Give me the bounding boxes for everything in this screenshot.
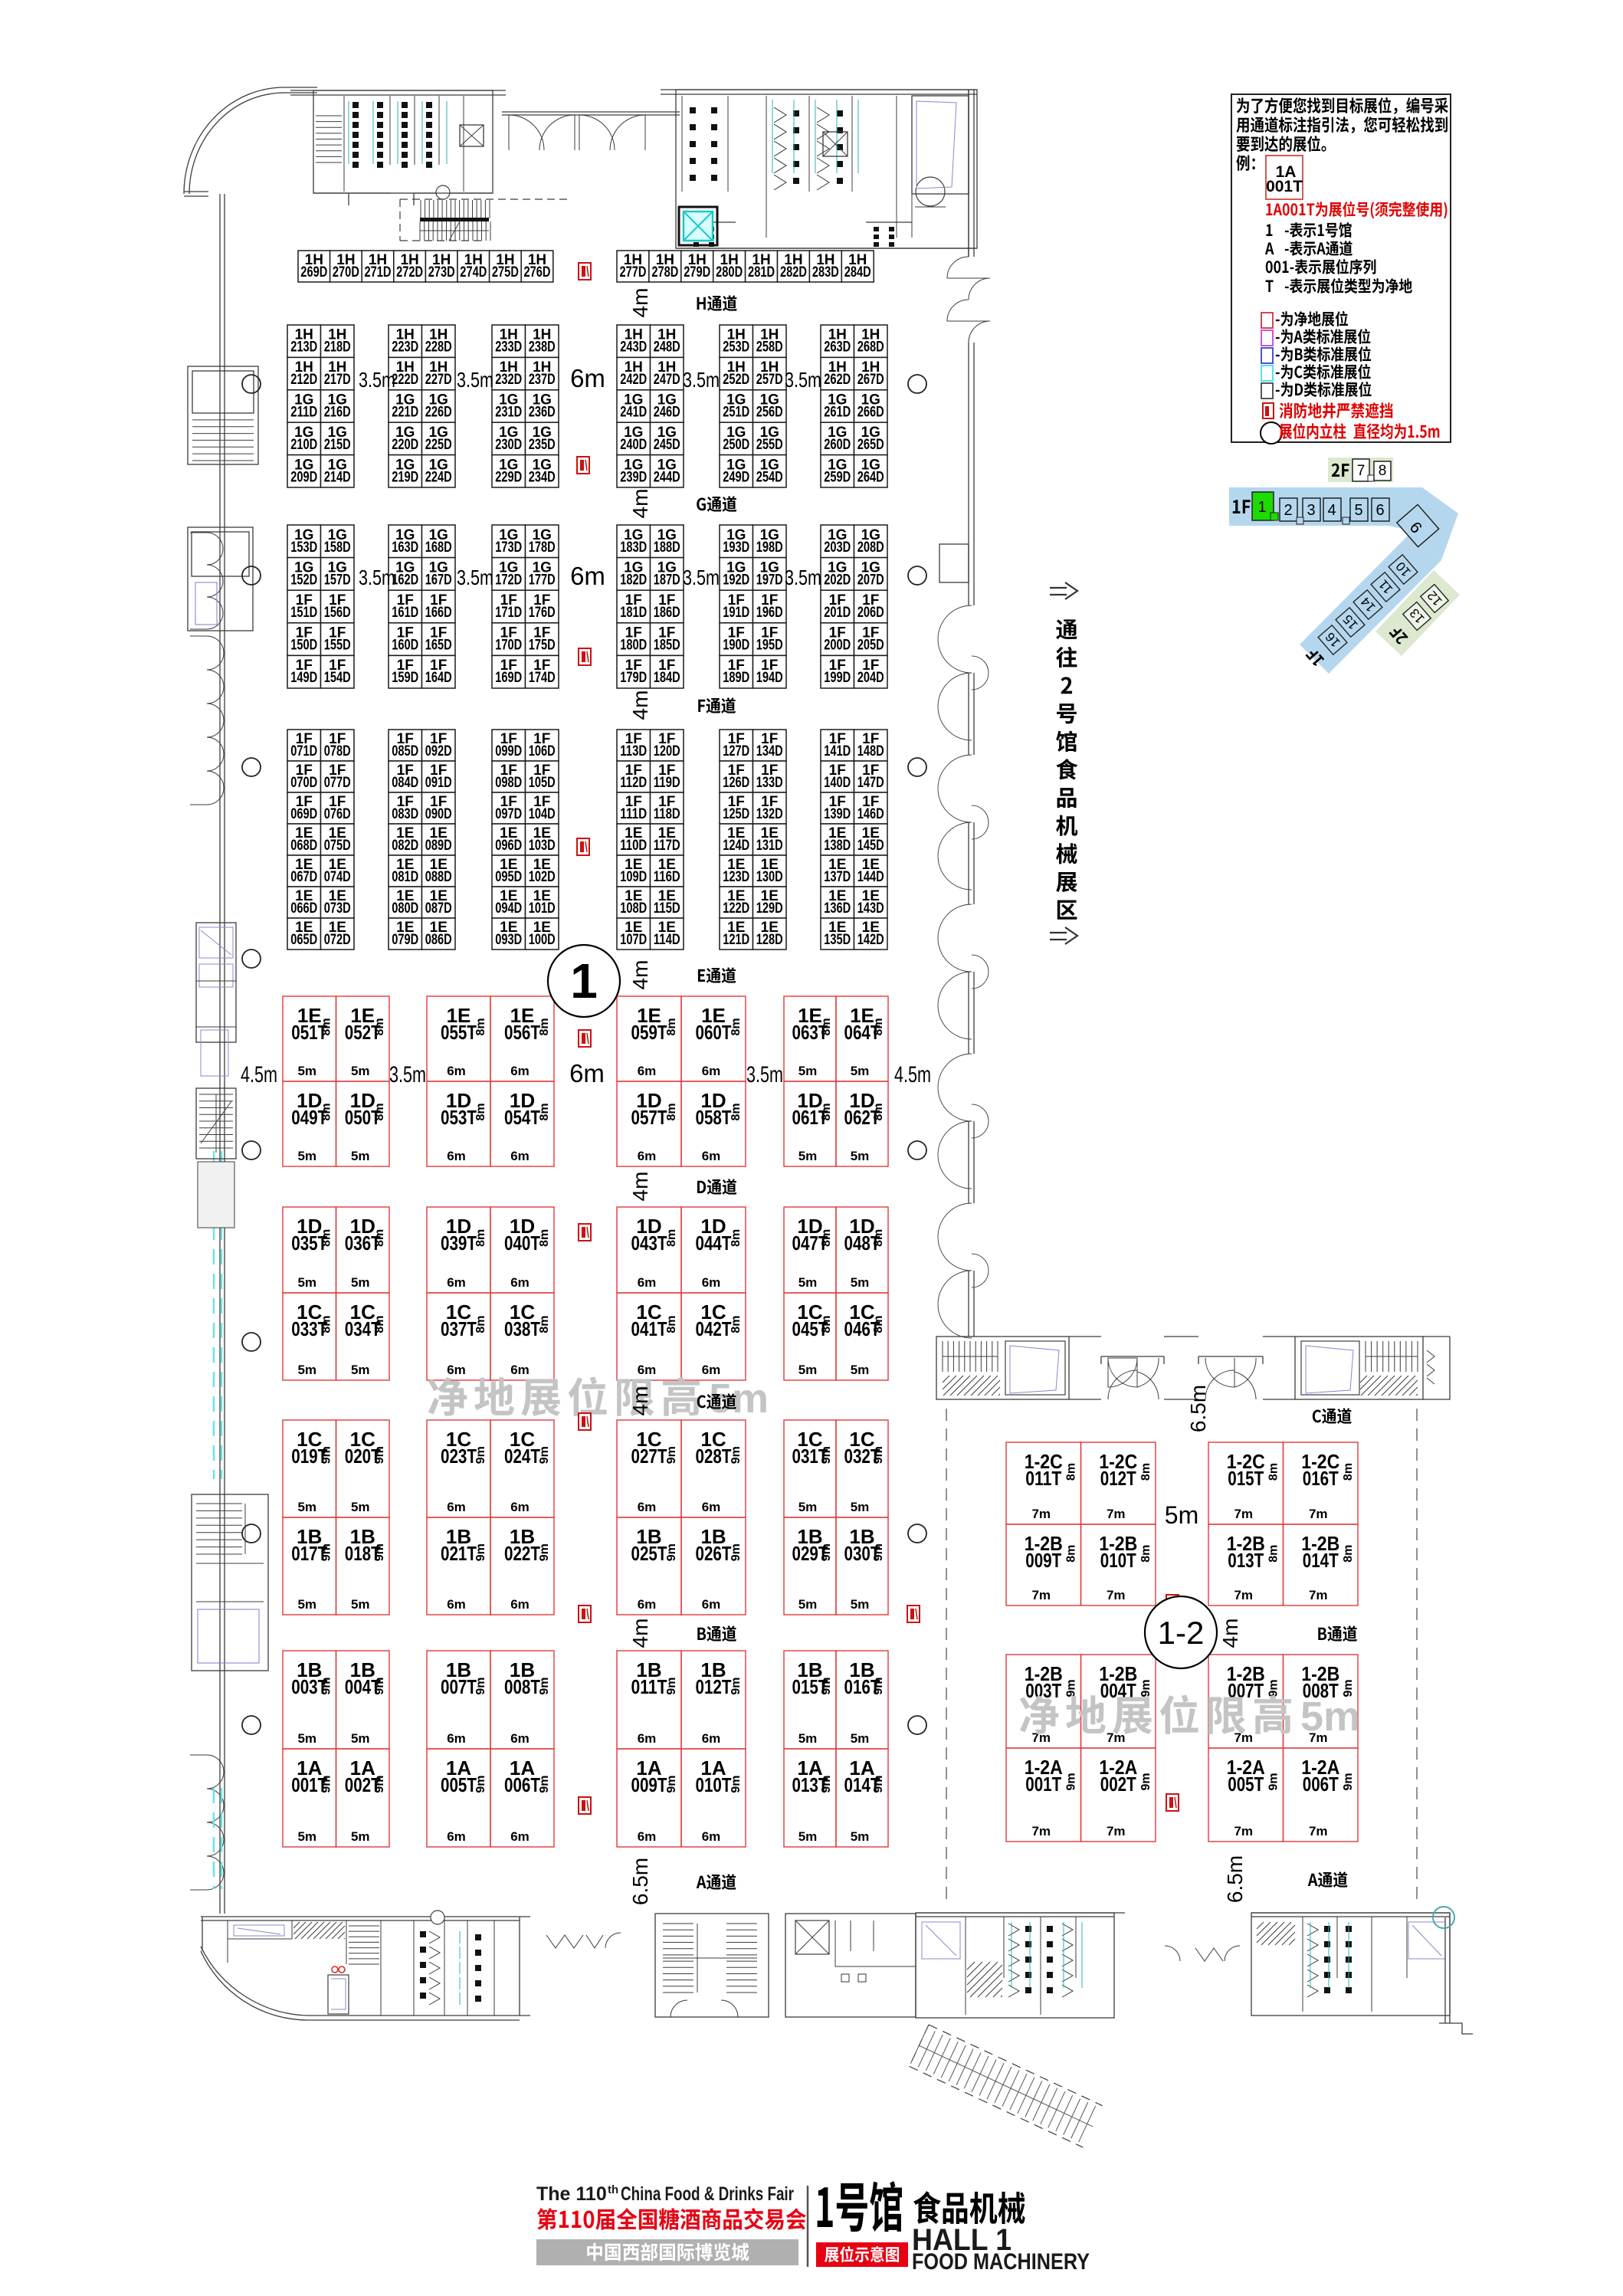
svg-text:7: 7 xyxy=(1357,463,1366,479)
svg-text:8: 8 xyxy=(1379,463,1387,479)
svg-text:077D: 077D xyxy=(324,775,351,791)
svg-text:075D: 075D xyxy=(324,838,351,854)
svg-text:9m: 9m xyxy=(730,1678,743,1695)
svg-text:001T: 001T xyxy=(1025,1773,1061,1796)
svg-text:167D: 167D xyxy=(425,572,452,588)
svg-text:8m: 8m xyxy=(320,1229,333,1247)
svg-text:227D: 227D xyxy=(425,372,452,388)
svg-text:168D: 168D xyxy=(425,540,452,556)
svg-text:6m: 6m xyxy=(638,1275,657,1290)
svg-text:149D: 149D xyxy=(290,670,317,686)
svg-text:9m: 9m xyxy=(474,1543,487,1561)
svg-text:265D: 265D xyxy=(857,437,884,453)
svg-text:3: 3 xyxy=(1307,502,1315,519)
svg-text:5m: 5m xyxy=(798,1149,818,1163)
svg-text:9m: 9m xyxy=(1065,1773,1078,1790)
svg-text:141D: 141D xyxy=(824,743,851,759)
svg-text:254D: 254D xyxy=(756,469,783,485)
svg-text:189D: 189D xyxy=(723,670,749,686)
svg-text:6m: 6m xyxy=(510,1275,530,1290)
svg-text:082D: 082D xyxy=(392,838,418,854)
svg-text:009T: 009T xyxy=(1025,1549,1061,1572)
svg-text:262D: 262D xyxy=(824,372,851,388)
svg-text:176D: 176D xyxy=(529,605,556,621)
svg-text:8m: 8m xyxy=(538,1018,551,1035)
svg-text:267D: 267D xyxy=(857,372,884,388)
svg-text:263D: 263D xyxy=(824,339,851,356)
svg-text:152D: 152D xyxy=(290,572,317,588)
svg-text:6m: 6m xyxy=(447,1597,466,1612)
svg-text:9m: 9m xyxy=(320,1446,333,1464)
svg-text:146D: 146D xyxy=(857,806,884,822)
svg-text:192D: 192D xyxy=(723,572,749,588)
svg-text:5m: 5m xyxy=(351,1597,370,1612)
svg-text:234D: 234D xyxy=(529,469,556,485)
svg-text:026T: 026T xyxy=(696,1542,732,1565)
svg-text:5m: 5m xyxy=(351,1500,370,1514)
svg-text:122D: 122D xyxy=(723,900,749,917)
svg-text:179D: 179D xyxy=(620,670,647,686)
svg-text:282D: 282D xyxy=(780,264,807,280)
svg-text:4m: 4m xyxy=(628,1386,652,1416)
svg-text:185D: 185D xyxy=(654,638,680,654)
svg-text:070D: 070D xyxy=(290,775,317,791)
svg-text:9m: 9m xyxy=(538,1678,551,1695)
svg-text:236D: 236D xyxy=(529,405,556,421)
svg-text:8m: 8m xyxy=(1267,1545,1280,1563)
svg-text:6.5m: 6.5m xyxy=(628,1858,652,1905)
svg-text:8m: 8m xyxy=(665,1315,678,1333)
svg-text:009T: 009T xyxy=(631,1773,667,1796)
svg-text:160D: 160D xyxy=(392,638,418,654)
svg-text:9m: 9m xyxy=(474,1776,487,1793)
svg-text:083D: 083D xyxy=(392,806,418,822)
svg-text:011T: 011T xyxy=(1025,1467,1061,1490)
svg-text:217D: 217D xyxy=(324,372,351,388)
svg-text:8m: 8m xyxy=(474,1315,487,1333)
svg-text:6m: 6m xyxy=(702,1829,721,1844)
svg-text:8m: 8m xyxy=(872,1229,885,1247)
svg-text:5m: 5m xyxy=(798,1064,818,1078)
svg-text:111D: 111D xyxy=(620,806,647,822)
svg-text:8m: 8m xyxy=(730,1018,743,1035)
svg-text:038T: 038T xyxy=(504,1317,540,1340)
svg-text:118D: 118D xyxy=(654,806,680,822)
svg-text:8m: 8m xyxy=(1139,1463,1152,1481)
svg-text:162D: 162D xyxy=(392,572,418,588)
svg-text:060T: 060T xyxy=(696,1021,732,1044)
svg-text:191D: 191D xyxy=(723,605,749,621)
svg-text:China Food & Drinks Fair: China Food & Drinks Fair xyxy=(621,2183,794,2205)
svg-text:273D: 273D xyxy=(428,264,455,280)
svg-text:9m: 9m xyxy=(1267,1773,1280,1790)
svg-text:151D: 151D xyxy=(290,605,317,621)
svg-text:150D: 150D xyxy=(290,638,317,654)
svg-text:166D: 166D xyxy=(425,605,452,621)
svg-text:068D: 068D xyxy=(290,838,317,854)
svg-text:6m: 6m xyxy=(510,1363,530,1377)
svg-text:170D: 170D xyxy=(495,638,522,654)
svg-text:5m: 5m xyxy=(351,1363,370,1377)
svg-text:8m: 8m xyxy=(1267,1463,1280,1481)
svg-text:129D: 129D xyxy=(756,900,783,917)
svg-text:200D: 200D xyxy=(824,638,851,654)
svg-text:9m: 9m xyxy=(872,1543,885,1561)
svg-text:110D: 110D xyxy=(620,838,647,854)
svg-text:252D: 252D xyxy=(723,372,749,388)
svg-text:3.5m: 3.5m xyxy=(457,368,493,392)
svg-text:6m: 6m xyxy=(638,1500,657,1514)
svg-text:4.5m: 4.5m xyxy=(894,1062,931,1087)
svg-text:5m: 5m xyxy=(1300,1694,1360,1740)
svg-text:3.5m: 3.5m xyxy=(359,368,395,392)
svg-text:001T: 001T xyxy=(1266,178,1303,195)
svg-text:272D: 272D xyxy=(396,264,423,280)
svg-text:4m: 4m xyxy=(1218,1619,1242,1648)
svg-text:164D: 164D xyxy=(425,670,452,686)
svg-text:7m: 7m xyxy=(1309,1507,1328,1521)
svg-text:8m: 8m xyxy=(665,1018,678,1035)
svg-text:256D: 256D xyxy=(756,405,783,421)
svg-text:025T: 025T xyxy=(631,1542,667,1565)
svg-text:169D: 169D xyxy=(495,670,522,686)
svg-text:9m: 9m xyxy=(820,1678,833,1695)
svg-text:7m: 7m xyxy=(1234,1824,1253,1838)
svg-text:280D: 280D xyxy=(716,264,743,280)
svg-text:6m: 6m xyxy=(510,1064,530,1078)
svg-text:9m: 9m xyxy=(872,1446,885,1464)
svg-text:8m: 8m xyxy=(1342,1545,1355,1563)
svg-text:7m: 7m xyxy=(1107,1824,1126,1838)
svg-text:021T: 021T xyxy=(441,1542,477,1565)
svg-text:127D: 127D xyxy=(723,743,749,759)
svg-text:145D: 145D xyxy=(857,838,884,854)
svg-text:3.5m: 3.5m xyxy=(389,1062,426,1087)
svg-text:8m: 8m xyxy=(820,1229,833,1247)
svg-text:9m: 9m xyxy=(665,1776,678,1793)
svg-text:161D: 161D xyxy=(392,605,418,621)
svg-text:074D: 074D xyxy=(324,869,351,885)
svg-text:014T: 014T xyxy=(1303,1549,1339,1572)
svg-text:6m: 6m xyxy=(447,1149,466,1163)
svg-text:7m: 7m xyxy=(1234,1588,1253,1602)
svg-text:103D: 103D xyxy=(529,838,556,854)
svg-text:9m: 9m xyxy=(373,1543,386,1561)
svg-text:131D: 131D xyxy=(756,838,783,854)
svg-text:092D: 092D xyxy=(425,743,452,759)
svg-text:098D: 098D xyxy=(495,775,522,791)
svg-text:6m: 6m xyxy=(638,1149,657,1163)
svg-text:086D: 086D xyxy=(425,932,452,948)
svg-text:9m: 9m xyxy=(320,1678,333,1695)
svg-text:204D: 204D xyxy=(857,670,884,686)
svg-text:177D: 177D xyxy=(529,572,556,588)
svg-text:187D: 187D xyxy=(654,572,680,588)
svg-text:5m: 5m xyxy=(351,1829,370,1844)
svg-text:266D: 266D xyxy=(857,405,884,421)
svg-text:058T: 058T xyxy=(696,1106,732,1129)
svg-text:4m: 4m xyxy=(628,960,652,990)
svg-text:242D: 242D xyxy=(620,372,647,388)
svg-text:6m: 6m xyxy=(447,1363,466,1377)
svg-text:5m: 5m xyxy=(351,1149,370,1163)
svg-text:5m: 5m xyxy=(297,1829,316,1844)
svg-text:6m: 6m xyxy=(510,1149,530,1163)
svg-text:073D: 073D xyxy=(324,900,351,917)
svg-text:201D: 201D xyxy=(824,605,851,621)
svg-text:8m: 8m xyxy=(1065,1545,1078,1563)
svg-text:218D: 218D xyxy=(324,339,351,356)
svg-text:057T: 057T xyxy=(631,1106,667,1129)
svg-text:5m: 5m xyxy=(297,1363,316,1377)
svg-text:209D: 209D xyxy=(290,469,317,485)
svg-text:084D: 084D xyxy=(392,775,418,791)
svg-text:6m: 6m xyxy=(638,1731,657,1746)
svg-text:107D: 107D xyxy=(620,932,647,948)
svg-text:181D: 181D xyxy=(620,605,647,621)
svg-text:6.5m: 6.5m xyxy=(1223,1855,1247,1903)
svg-text:6m: 6m xyxy=(702,1731,721,1746)
svg-text:197D: 197D xyxy=(756,572,783,588)
svg-text:154D: 154D xyxy=(324,670,351,686)
svg-text:5: 5 xyxy=(1354,502,1362,519)
svg-text:005T: 005T xyxy=(441,1773,477,1796)
svg-text:9m: 9m xyxy=(730,1446,743,1464)
svg-text:163D: 163D xyxy=(392,540,418,556)
svg-text:9m: 9m xyxy=(1139,1679,1152,1697)
svg-text:096D: 096D xyxy=(495,838,522,854)
svg-text:043T: 043T xyxy=(631,1232,667,1255)
svg-text:9m: 9m xyxy=(872,1776,885,1793)
svg-text:9m: 9m xyxy=(872,1678,885,1695)
svg-text:113D: 113D xyxy=(620,743,647,759)
svg-text:8m: 8m xyxy=(730,1229,743,1247)
svg-text:5m: 5m xyxy=(351,1275,370,1290)
svg-text:013T: 013T xyxy=(1228,1549,1264,1572)
svg-text:213D: 213D xyxy=(290,339,317,356)
svg-text:8m: 8m xyxy=(820,1103,833,1120)
svg-text:186D: 186D xyxy=(654,605,680,621)
svg-text:6m: 6m xyxy=(702,1500,721,1514)
svg-text:106D: 106D xyxy=(529,743,556,759)
svg-text:243D: 243D xyxy=(620,339,647,356)
svg-text:037T: 037T xyxy=(441,1317,477,1340)
svg-text:216D: 216D xyxy=(324,405,351,421)
svg-text:220D: 220D xyxy=(392,437,418,453)
svg-text:251D: 251D xyxy=(723,405,749,421)
svg-text:042T: 042T xyxy=(696,1317,732,1340)
svg-text:5m: 5m xyxy=(851,1064,870,1078)
svg-text:053T: 053T xyxy=(441,1106,477,1129)
svg-text:067D: 067D xyxy=(290,869,317,885)
svg-text:212D: 212D xyxy=(290,372,317,388)
svg-text:7m: 7m xyxy=(1031,1824,1051,1838)
svg-text:101D: 101D xyxy=(529,900,556,917)
svg-text:6m: 6m xyxy=(510,1500,530,1514)
svg-text:268D: 268D xyxy=(857,339,884,356)
svg-text:6m: 6m xyxy=(570,562,605,590)
svg-text:260D: 260D xyxy=(824,437,851,453)
svg-text:155D: 155D xyxy=(324,638,351,654)
svg-text:5m: 5m xyxy=(851,1500,870,1514)
svg-text:8m: 8m xyxy=(730,1315,743,1333)
svg-text:081D: 081D xyxy=(392,869,418,885)
svg-text:195D: 195D xyxy=(756,638,783,654)
svg-text:069D: 069D xyxy=(290,806,317,822)
svg-text:136D: 136D xyxy=(824,900,851,917)
svg-text:065D: 065D xyxy=(290,932,317,948)
svg-text:006T: 006T xyxy=(504,1773,540,1796)
svg-text:003T: 003T xyxy=(1025,1679,1061,1702)
svg-text:264D: 264D xyxy=(857,469,884,485)
svg-text:6m: 6m xyxy=(510,1731,530,1746)
svg-text:135D: 135D xyxy=(824,932,851,948)
svg-text:8m: 8m xyxy=(1065,1463,1078,1481)
svg-text:225D: 225D xyxy=(425,437,452,453)
svg-text:229D: 229D xyxy=(495,469,522,485)
svg-text:5m: 5m xyxy=(851,1275,870,1290)
svg-text:249D: 249D xyxy=(723,469,749,485)
svg-text:232D: 232D xyxy=(495,372,522,388)
svg-text:221D: 221D xyxy=(392,405,418,421)
svg-text:194D: 194D xyxy=(756,670,783,686)
svg-text:233D: 233D xyxy=(495,339,522,356)
svg-text:6m: 6m xyxy=(702,1275,721,1290)
svg-text:3.5m: 3.5m xyxy=(683,566,720,589)
svg-text:076D: 076D xyxy=(324,806,351,822)
svg-text:224D: 224D xyxy=(425,469,452,485)
svg-text:276D: 276D xyxy=(524,264,551,280)
svg-text:133D: 133D xyxy=(756,775,783,791)
svg-text:184D: 184D xyxy=(654,670,680,686)
svg-text:205D: 205D xyxy=(857,638,884,654)
svg-text:1: 1 xyxy=(570,953,598,1009)
svg-text:8m: 8m xyxy=(373,1018,386,1035)
svg-text:250D: 250D xyxy=(723,437,749,453)
svg-text:9m: 9m xyxy=(665,1543,678,1561)
svg-text:193D: 193D xyxy=(723,540,749,556)
svg-text:9m: 9m xyxy=(373,1776,386,1793)
svg-text:253D: 253D xyxy=(723,339,749,356)
svg-text:215D: 215D xyxy=(324,437,351,453)
svg-text:180D: 180D xyxy=(620,638,647,654)
svg-text:248D: 248D xyxy=(654,339,680,356)
svg-text:094D: 094D xyxy=(495,900,522,917)
svg-text:240D: 240D xyxy=(620,437,647,453)
svg-text:5m: 5m xyxy=(798,1597,818,1612)
svg-text:123D: 123D xyxy=(723,869,749,885)
svg-text:6m: 6m xyxy=(447,1064,466,1078)
svg-text:095D: 095D xyxy=(495,869,522,885)
svg-text:5m: 5m xyxy=(297,1731,316,1746)
svg-text:091D: 091D xyxy=(425,775,452,791)
svg-text:089D: 089D xyxy=(425,838,452,854)
svg-text:223D: 223D xyxy=(392,339,418,356)
svg-text:258D: 258D xyxy=(756,339,783,356)
svg-text:8m: 8m xyxy=(872,1018,885,1035)
svg-text:241D: 241D xyxy=(620,405,647,421)
svg-text:6m: 6m xyxy=(702,1149,721,1163)
svg-text:5m: 5m xyxy=(297,1597,316,1612)
svg-text:5m: 5m xyxy=(351,1064,370,1078)
svg-text:207D: 207D xyxy=(857,572,884,588)
svg-text:5m: 5m xyxy=(851,1731,870,1746)
svg-text:196D: 196D xyxy=(756,605,783,621)
svg-text:156D: 156D xyxy=(324,605,351,621)
svg-text:040T: 040T xyxy=(504,1232,540,1255)
svg-text:5m: 5m xyxy=(351,1731,370,1746)
svg-text:214D: 214D xyxy=(324,469,351,485)
svg-text:5m: 5m xyxy=(851,1149,870,1163)
svg-text:124D: 124D xyxy=(723,838,749,854)
svg-text:283D: 283D xyxy=(812,264,839,280)
svg-text:080D: 080D xyxy=(392,900,418,917)
svg-text:3.5m: 3.5m xyxy=(785,368,821,392)
svg-text:9m: 9m xyxy=(730,1776,743,1793)
svg-text:175D: 175D xyxy=(529,638,556,654)
svg-text:9m: 9m xyxy=(820,1543,833,1561)
svg-text:2: 2 xyxy=(1284,502,1292,519)
svg-text:139D: 139D xyxy=(824,806,851,822)
svg-text:6m: 6m xyxy=(638,1064,657,1078)
svg-text:087D: 087D xyxy=(425,900,452,917)
svg-text:147D: 147D xyxy=(857,775,884,791)
svg-text:270D: 270D xyxy=(333,264,359,280)
svg-text:012T: 012T xyxy=(696,1675,732,1698)
svg-text:277D: 277D xyxy=(619,264,646,280)
svg-text:8m: 8m xyxy=(474,1018,487,1035)
svg-text:112D: 112D xyxy=(620,775,647,791)
svg-text:144D: 144D xyxy=(857,869,884,885)
svg-text:5m: 5m xyxy=(297,1064,316,1078)
svg-text:134D: 134D xyxy=(756,743,783,759)
svg-text:238D: 238D xyxy=(529,339,556,356)
svg-text:245D: 245D xyxy=(654,437,680,453)
svg-text:6.5m: 6.5m xyxy=(1186,1385,1210,1432)
svg-text:011T: 011T xyxy=(631,1675,667,1698)
svg-text:4: 4 xyxy=(1327,502,1336,519)
svg-text:5m: 5m xyxy=(851,1829,870,1844)
svg-text:6m: 6m xyxy=(638,1597,657,1612)
svg-text:012T: 012T xyxy=(1100,1467,1136,1490)
svg-text:th: th xyxy=(608,2183,618,2196)
svg-text:198D: 198D xyxy=(756,540,783,556)
svg-text:090D: 090D xyxy=(425,806,452,822)
svg-text:9m: 9m xyxy=(373,1678,386,1695)
svg-text:278D: 278D xyxy=(651,264,678,280)
svg-text:6m: 6m xyxy=(447,1731,466,1746)
svg-text:3.5m: 3.5m xyxy=(359,566,395,589)
svg-text:1: 1 xyxy=(1257,499,1266,516)
svg-text:126D: 126D xyxy=(723,775,749,791)
svg-text:008T: 008T xyxy=(504,1675,540,1698)
svg-text:5m: 5m xyxy=(851,1363,870,1377)
svg-text:171D: 171D xyxy=(495,605,522,621)
svg-text:8m: 8m xyxy=(474,1229,487,1247)
svg-text:8m: 8m xyxy=(320,1103,333,1120)
svg-text:153D: 153D xyxy=(290,540,317,556)
svg-text:104D: 104D xyxy=(529,806,556,822)
svg-text:5m: 5m xyxy=(798,1500,818,1514)
svg-text:121D: 121D xyxy=(723,932,749,948)
svg-text:6m: 6m xyxy=(510,1829,530,1844)
svg-text:3.5m: 3.5m xyxy=(457,566,493,589)
svg-text:114D: 114D xyxy=(654,932,680,948)
svg-text:8m: 8m xyxy=(872,1103,885,1120)
svg-text:7m: 7m xyxy=(1309,1824,1328,1838)
svg-text:071D: 071D xyxy=(290,743,317,759)
svg-text:208D: 208D xyxy=(857,540,884,556)
